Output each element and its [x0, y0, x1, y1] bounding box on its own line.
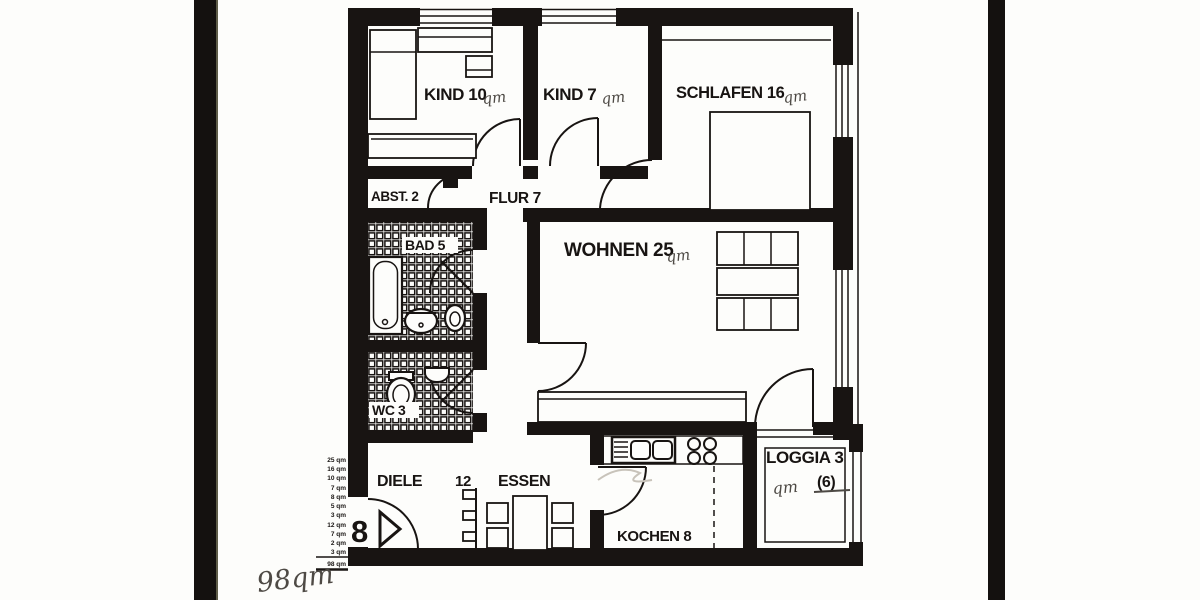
area-row: 25 qm: [327, 457, 346, 464]
window-kind2: [542, 10, 616, 24]
window-wohnen-east: [836, 270, 848, 387]
area-row: 2 qm: [331, 540, 346, 547]
scanned-page: KIND 10 qm KIND 7 qm SCHLAFEN 16 qm ABST…: [0, 0, 1200, 600]
wc-sink: [425, 368, 449, 382]
area-row: 7 qm: [331, 531, 346, 538]
window-schlafen-east: [836, 65, 848, 137]
label-loggia-qm: qm: [772, 477, 799, 498]
label-wohnen-qm: qm: [666, 246, 692, 266]
chair: [552, 503, 573, 523]
area-table: 25 qm 16 qm 10 qm 7 qm 8 qm 5 qm 3 qm 12…: [316, 457, 348, 570]
floor-plan-drawing: KIND 10 qm KIND 7 qm SCHLAFEN 16 qm ABST…: [0, 0, 1200, 600]
area-row: 16 qm: [327, 466, 346, 473]
dining-table: [513, 496, 547, 550]
label-diele: DIELE: [377, 473, 423, 490]
label-kind1: KIND 10: [424, 85, 486, 104]
bed: [370, 30, 416, 119]
label-bad-group: BAD 5: [402, 237, 458, 253]
label-kind1-qm: qm: [482, 88, 508, 108]
label-diele-number: 12: [455, 473, 471, 490]
bathroom-sink: [405, 309, 437, 333]
door-kind2: [550, 118, 598, 166]
label-bad: BAD 5: [405, 237, 446, 253]
area-row: 3 qm: [331, 549, 346, 556]
label-essen: ESSEN: [498, 473, 550, 490]
area-row: 3 qm: [331, 512, 346, 519]
wc-tile-floor: [368, 352, 473, 430]
label-kind2-qm: qm: [601, 88, 627, 108]
area-row: 5 qm: [331, 503, 346, 510]
chair: [487, 503, 508, 523]
sofa: [717, 232, 798, 265]
stove-burners: [688, 438, 716, 464]
entrance-number: 8: [351, 514, 368, 549]
nightstand: [466, 56, 492, 77]
label-kochen: KOCHEN 8: [617, 528, 691, 545]
bathtub: [369, 257, 402, 334]
coat-rack: [463, 488, 476, 551]
label-wc-group: WC 3: [369, 402, 419, 418]
sofa-2: [717, 298, 798, 330]
entrance-door: [368, 499, 418, 549]
bidet: [445, 305, 465, 331]
label-schlafen-qm: qm: [782, 86, 808, 107]
area-row: 8 qm: [331, 494, 346, 501]
label-wc: WC 3: [372, 402, 406, 418]
sideboard: [538, 392, 746, 422]
entrance-arrow-icon: [380, 512, 400, 546]
essen-furniture: [463, 488, 573, 551]
label-flur: FLUR 7: [489, 190, 541, 207]
coffee-table: [717, 268, 798, 295]
label-abst: ABST. 2: [371, 189, 418, 204]
label-loggia: LOGGIA 3: [766, 448, 843, 467]
door-wohnen: [538, 343, 586, 391]
door-kind1: [473, 119, 520, 166]
area-row: 12 qm: [327, 522, 346, 529]
desk: [368, 134, 476, 158]
area-row: 7 qm: [331, 485, 346, 492]
chair: [487, 528, 508, 548]
area-row: 10 qm: [327, 475, 346, 482]
wardrobe: [418, 28, 492, 52]
window-kind1: [420, 10, 492, 24]
label-schlafen: SCHLAFEN 16: [676, 84, 785, 102]
schlafen-bed: [710, 112, 810, 210]
handwritten-total: 98qm: [255, 559, 335, 599]
door-loggia: [755, 369, 813, 427]
label-loggia-note: (6): [817, 474, 835, 491]
label-wohnen: WOHNEN 25: [564, 240, 674, 261]
label-kind2: KIND 7: [543, 85, 596, 104]
chair: [552, 528, 573, 548]
